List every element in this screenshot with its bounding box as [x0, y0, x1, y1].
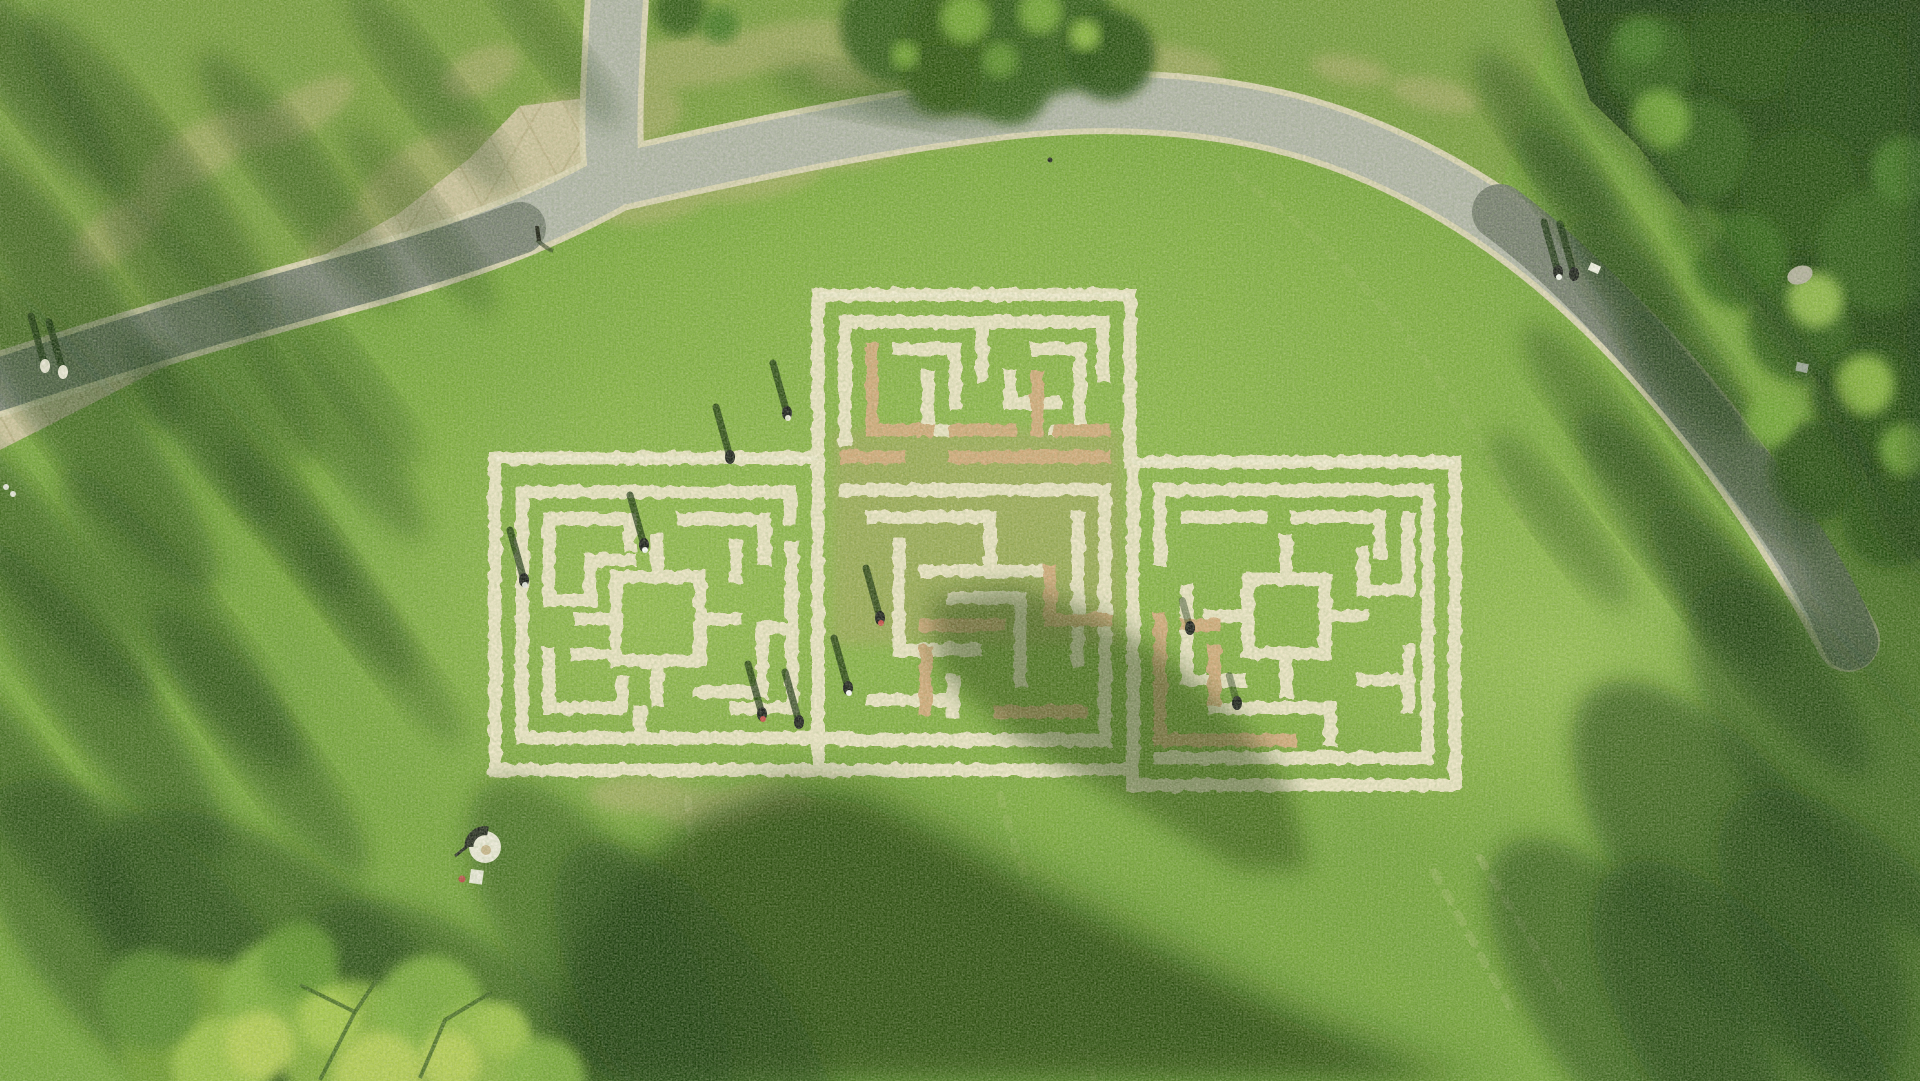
grain-dark [0, 0, 1920, 1081]
aerial-park-photo [0, 0, 1920, 1081]
scene-layers [0, 0, 1920, 1081]
scene-canvas [0, 0, 1920, 1081]
